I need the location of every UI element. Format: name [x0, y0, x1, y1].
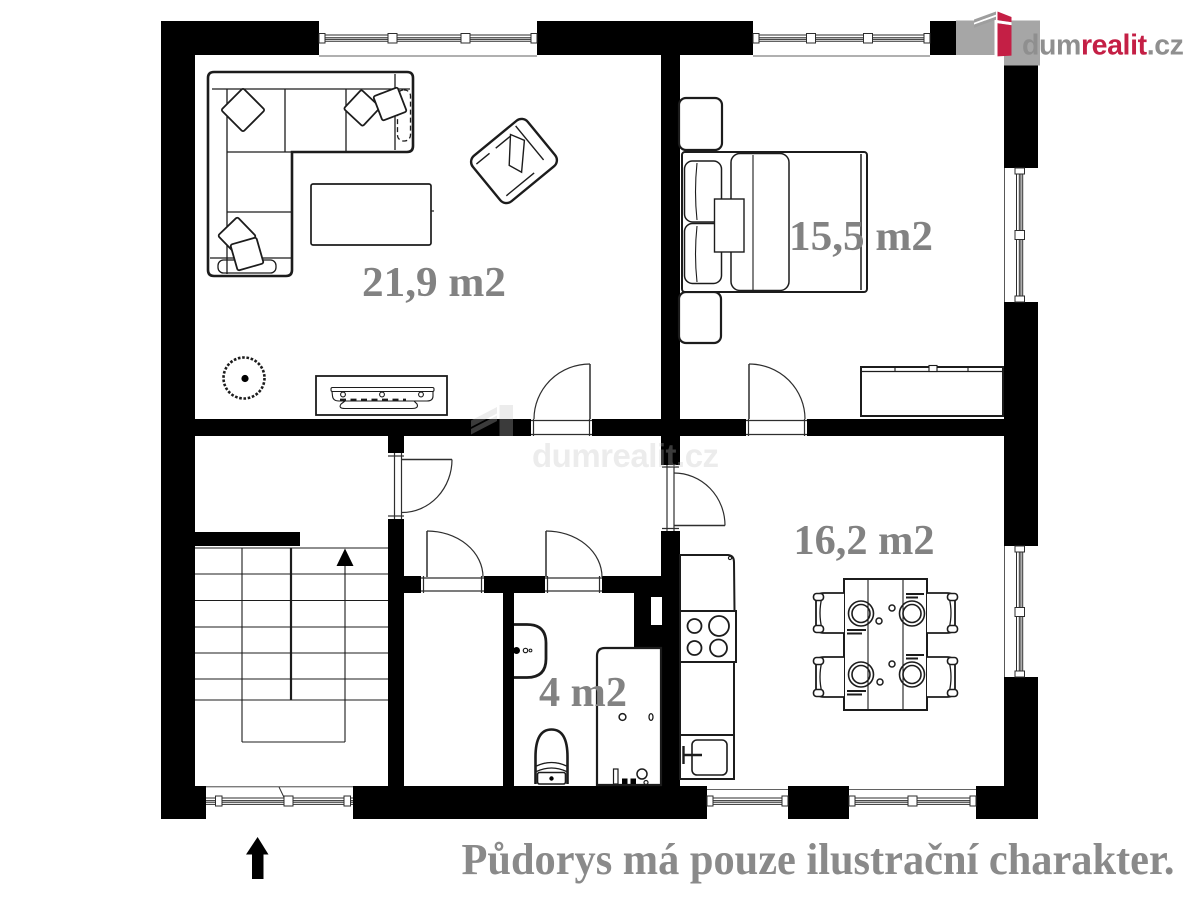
svg-text:dumrealit.cz: dumrealit.cz [1022, 30, 1184, 62]
svg-text:4 m2: 4 m2 [539, 670, 627, 716]
svg-text:21,9 m2: 21,9 m2 [362, 260, 506, 306]
svg-text:dumrealit.cz: dumrealit.cz [532, 437, 719, 474]
svg-text:Půdorys má pouze ilustrační ch: Půdorys má pouze ilustrační charakter. [462, 835, 1175, 884]
svg-text:15,5 m2: 15,5 m2 [789, 214, 933, 260]
svg-text:16,2 m2: 16,2 m2 [794, 518, 935, 564]
